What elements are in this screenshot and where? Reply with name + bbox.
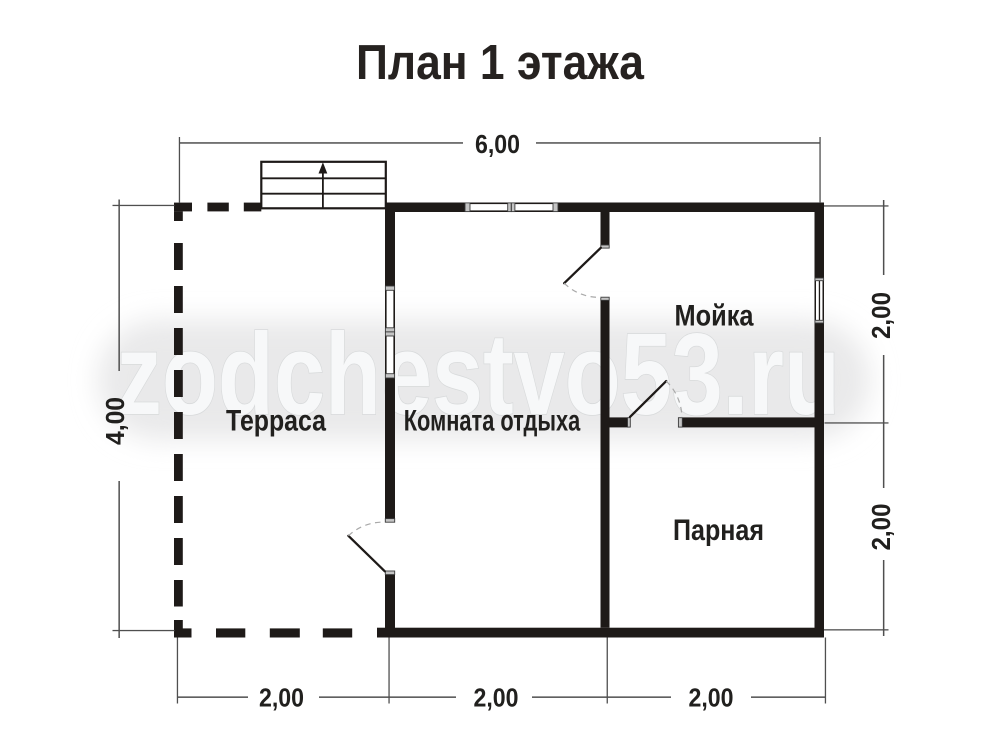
svg-text:2,00: 2,00 (868, 504, 896, 551)
svg-text:2,00: 2,00 (689, 685, 734, 713)
svg-text:4,00: 4,00 (102, 397, 130, 445)
svg-text:Терраса: Терраса (226, 405, 326, 438)
svg-text:2,00: 2,00 (474, 685, 519, 713)
svg-text:6,00: 6,00 (475, 131, 520, 159)
svg-text:2,00: 2,00 (868, 292, 896, 339)
svg-text:2,00: 2,00 (259, 685, 304, 713)
svg-text:Парная: Парная (673, 514, 764, 547)
svg-text:Мойка: Мойка (675, 300, 755, 333)
svg-text:Комната отдыха: Комната отдыха (404, 405, 581, 438)
svg-text:План 1 этажа: План 1 этажа (356, 35, 644, 90)
